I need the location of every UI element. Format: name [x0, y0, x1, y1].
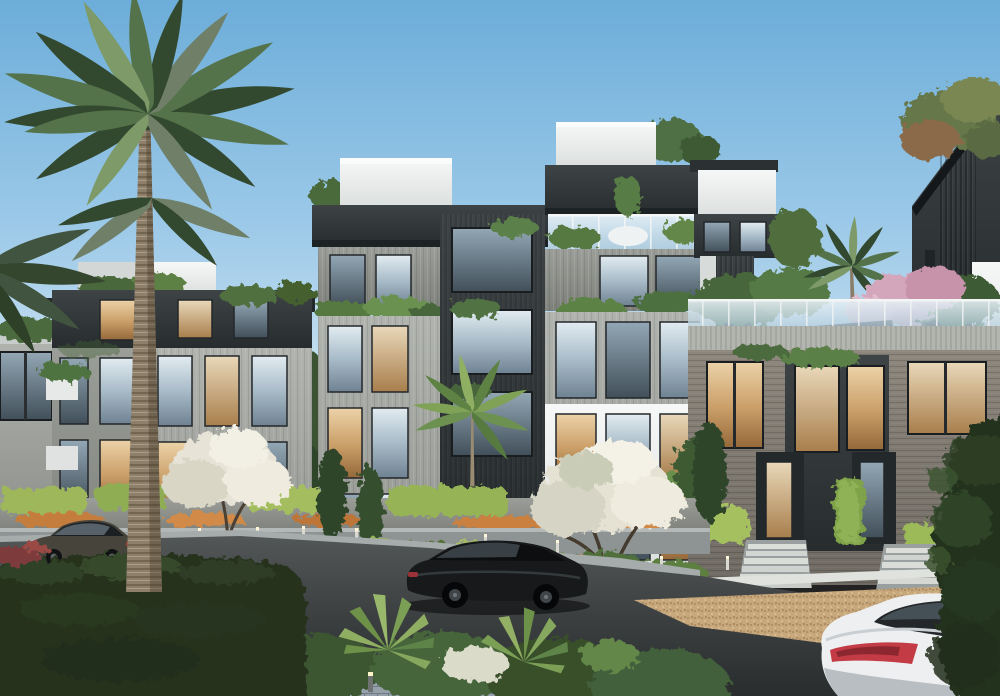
- architectural-render: [0, 0, 1000, 696]
- roof-box: [340, 158, 452, 210]
- scene-canvas: [0, 0, 1000, 696]
- taillight: [408, 572, 418, 577]
- green-pillar: [834, 478, 864, 544]
- path-lamp: [368, 672, 373, 692]
